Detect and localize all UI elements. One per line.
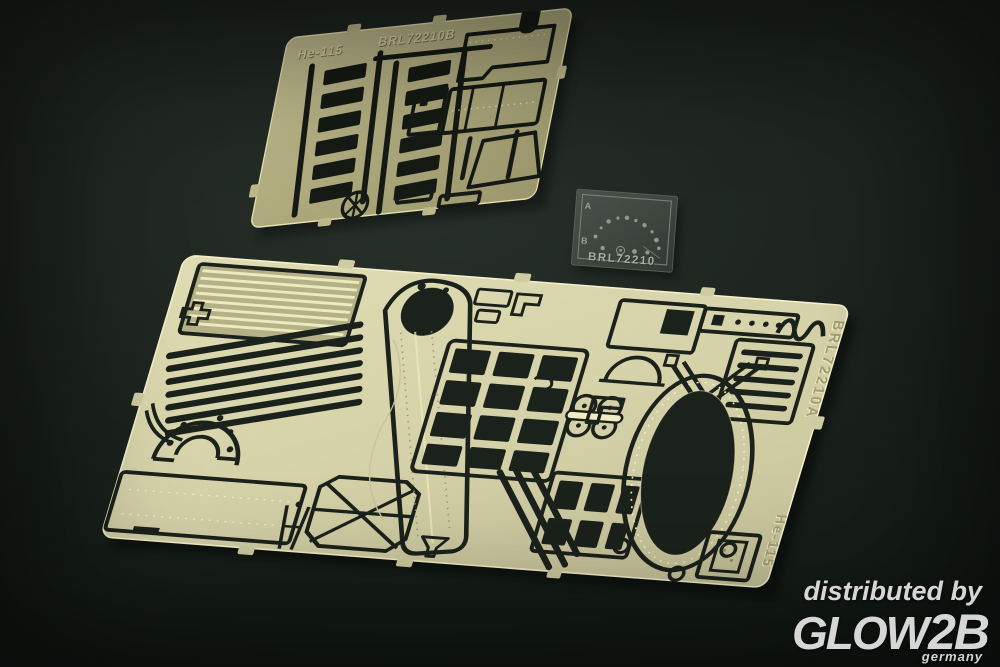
watermark-distributed-by: distributed by	[792, 578, 988, 605]
photo-canvas: He-115 He-115 BRL72210B BRL72210B	[0, 0, 1000, 667]
film-marking-b: B	[581, 235, 589, 245]
fret-large: BRL72210A BRL72210A He-115 He-115	[89, 247, 861, 597]
film-marking-a: A	[584, 201, 592, 211]
watermark: distributed by GLOW2B germany	[792, 578, 988, 663]
radiator-panel-part	[179, 264, 366, 346]
watermark-brand-glow: GLOW	[792, 607, 927, 659]
product-photo: He-115 He-115 BRL72210B BRL72210B	[0, 0, 1000, 667]
film-slide: A B BRL72210 BRL72210	[571, 189, 677, 272]
